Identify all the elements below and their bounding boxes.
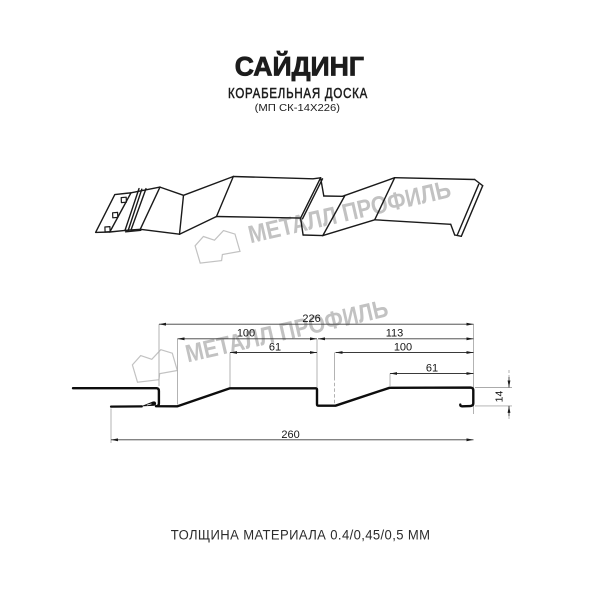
svg-text:(МП СК-14Х226): (МП СК-14Х226) [255, 103, 340, 114]
svg-text:100: 100 [237, 327, 255, 339]
svg-text:61: 61 [426, 362, 438, 374]
svg-text:100: 100 [394, 341, 412, 353]
svg-text:226: 226 [302, 313, 320, 325]
svg-text:61: 61 [269, 341, 281, 353]
svg-text:260: 260 [281, 429, 299, 441]
svg-text:113: 113 [386, 327, 404, 339]
svg-text:ТОЛЩИНА МАТЕРИАЛА 0.4/0,45/0,5: ТОЛЩИНА МАТЕРИАЛА 0.4/0,45/0,5 ММ [171, 528, 431, 543]
svg-text:САЙДИНГ: САЙДИНГ [235, 51, 364, 82]
svg-text:14: 14 [494, 391, 506, 403]
svg-text:КОРАБЕЛЬНАЯ ДОСКА: КОРАБЕЛЬНАЯ ДОСКА [228, 86, 368, 102]
